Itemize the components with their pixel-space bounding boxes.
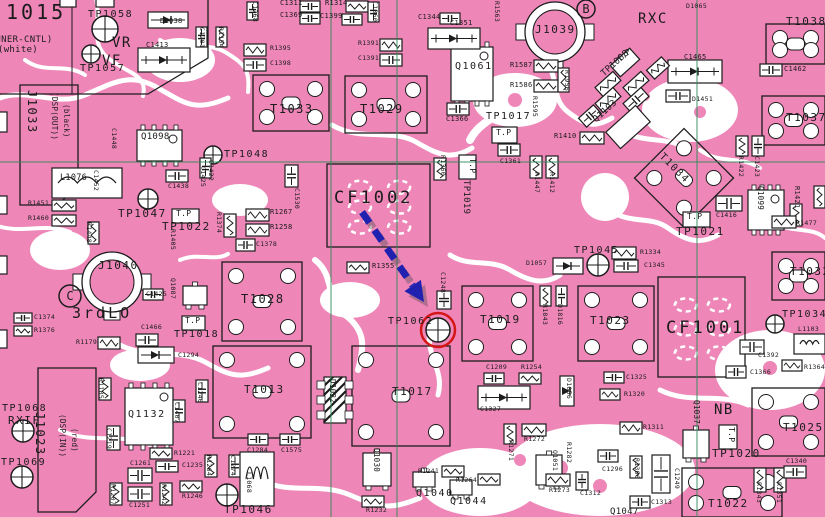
component — [0, 330, 7, 348]
component — [156, 461, 178, 472]
component — [128, 487, 152, 501]
component — [558, 68, 569, 92]
component — [138, 189, 158, 209]
component — [782, 360, 802, 371]
component — [459, 155, 476, 179]
component — [447, 103, 469, 115]
component — [236, 239, 255, 251]
pcb-layout-diagram: BC 1015(TUNER-CNTL)(white)TP1058VRVFTP10… — [0, 0, 825, 517]
component — [200, 158, 211, 178]
component — [498, 144, 520, 156]
component — [630, 456, 642, 478]
component — [347, 262, 369, 273]
component — [546, 156, 558, 178]
component — [426, 318, 450, 342]
component — [160, 483, 172, 505]
component — [534, 60, 558, 72]
component — [110, 483, 122, 505]
component — [14, 313, 32, 323]
component — [244, 44, 266, 56]
component — [766, 315, 784, 333]
component — [652, 455, 670, 493]
component — [530, 156, 542, 178]
component — [148, 12, 188, 28]
component — [726, 366, 746, 378]
component — [96, 0, 114, 7]
component — [492, 127, 517, 143]
component — [166, 170, 188, 182]
component — [107, 426, 120, 450]
component — [440, 13, 460, 24]
component — [317, 377, 353, 423]
component — [280, 434, 300, 445]
component — [216, 484, 238, 506]
component — [229, 455, 241, 477]
component — [666, 90, 690, 102]
component — [88, 222, 99, 244]
blank-white-circle — [581, 173, 629, 221]
component — [248, 434, 268, 445]
component — [52, 200, 76, 211]
component — [196, 27, 207, 47]
component — [668, 60, 722, 83]
component — [82, 45, 100, 63]
component — [92, 16, 118, 42]
component — [519, 373, 541, 384]
component — [183, 282, 207, 309]
component — [0, 196, 7, 214]
component — [428, 28, 480, 49]
component — [576, 472, 588, 490]
component — [504, 424, 516, 444]
component — [754, 468, 766, 492]
component — [442, 466, 464, 477]
component — [300, 13, 320, 24]
component — [683, 426, 709, 462]
component — [52, 168, 122, 198]
component — [346, 1, 368, 12]
component — [98, 337, 120, 349]
component — [99, 378, 111, 400]
component — [363, 449, 391, 490]
component — [484, 373, 504, 384]
component — [362, 496, 384, 507]
component — [740, 340, 764, 354]
component — [413, 468, 435, 491]
component — [736, 136, 748, 156]
component — [540, 286, 551, 306]
component — [556, 286, 567, 306]
component — [478, 386, 530, 409]
component — [368, 2, 379, 22]
component — [604, 372, 624, 383]
component — [580, 132, 604, 144]
component — [342, 14, 362, 25]
component — [60, 0, 76, 7]
pcb-board-graphic: BC — [0, 0, 825, 517]
component — [794, 334, 825, 354]
component — [0, 256, 7, 274]
component — [180, 481, 202, 492]
component — [814, 186, 825, 208]
component — [216, 27, 227, 47]
component — [752, 136, 764, 156]
component — [138, 347, 174, 363]
component — [247, 2, 258, 20]
component — [246, 224, 269, 236]
component — [12, 420, 34, 442]
component — [522, 424, 546, 436]
component — [598, 450, 618, 462]
component — [136, 334, 158, 346]
component — [14, 326, 32, 336]
component — [620, 422, 642, 434]
component — [553, 258, 583, 274]
component — [434, 158, 446, 180]
component — [451, 42, 493, 106]
component — [196, 380, 208, 402]
component — [612, 247, 636, 259]
marker-letter: C — [66, 289, 73, 303]
component — [716, 196, 742, 211]
component — [784, 466, 806, 478]
marker-letter: B — [582, 2, 589, 16]
component — [760, 64, 782, 76]
component — [437, 291, 451, 309]
component — [150, 448, 172, 459]
component — [300, 1, 320, 12]
component — [380, 39, 402, 51]
component — [138, 48, 190, 72]
component — [240, 452, 274, 506]
component — [534, 80, 558, 92]
component — [137, 125, 182, 166]
component — [719, 425, 737, 449]
component — [450, 476, 472, 499]
component — [125, 383, 173, 450]
component — [172, 209, 199, 223]
component — [600, 389, 620, 400]
component — [11, 466, 33, 488]
component — [244, 59, 266, 71]
component — [630, 496, 650, 508]
component — [285, 165, 298, 187]
component — [182, 316, 205, 330]
component — [143, 289, 163, 300]
component — [380, 54, 402, 66]
component — [587, 254, 609, 276]
component — [614, 260, 638, 272]
component — [52, 215, 76, 226]
component — [772, 216, 796, 228]
component — [478, 474, 500, 485]
component — [560, 376, 574, 406]
component — [224, 214, 236, 237]
component — [205, 455, 217, 477]
component — [173, 400, 185, 422]
component — [0, 112, 7, 132]
component — [246, 209, 269, 221]
component — [546, 474, 570, 486]
component — [128, 468, 152, 483]
